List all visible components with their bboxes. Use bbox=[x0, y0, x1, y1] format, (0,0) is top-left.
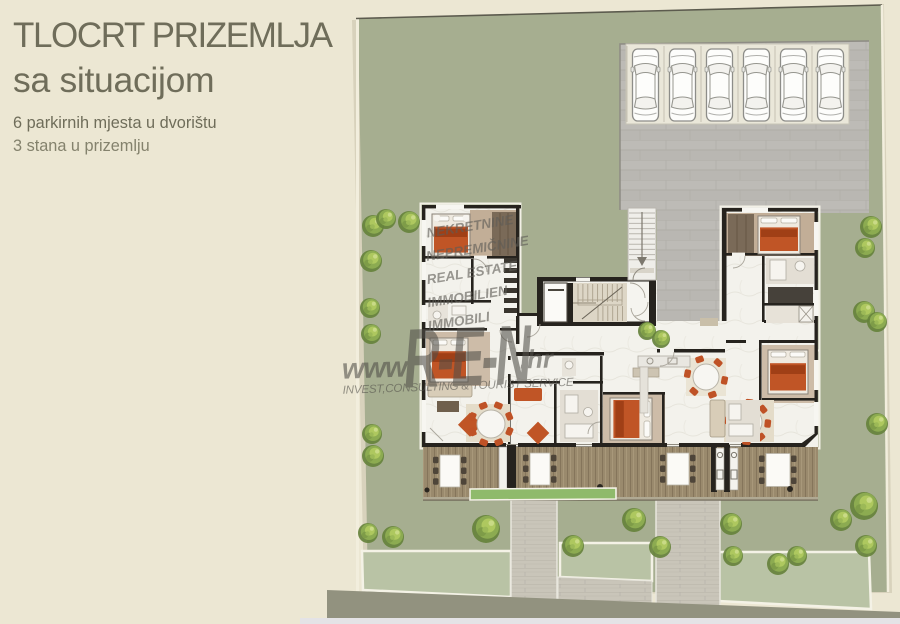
svg-text:3 stana u prizemlju: 3 stana u prizemlju bbox=[13, 137, 150, 155]
svg-text:6 parkirnih mjesta u dvorištu: 6 parkirnih mjesta u dvorištu bbox=[13, 114, 217, 132]
svg-text:TLOCRT PRIZEMLJA: TLOCRT PRIZEMLJA bbox=[13, 16, 334, 55]
svg-text:.hr: .hr bbox=[519, 343, 555, 374]
svg-text:www.: www. bbox=[341, 351, 413, 385]
svg-text:sa situacijom: sa situacijom bbox=[13, 60, 214, 100]
